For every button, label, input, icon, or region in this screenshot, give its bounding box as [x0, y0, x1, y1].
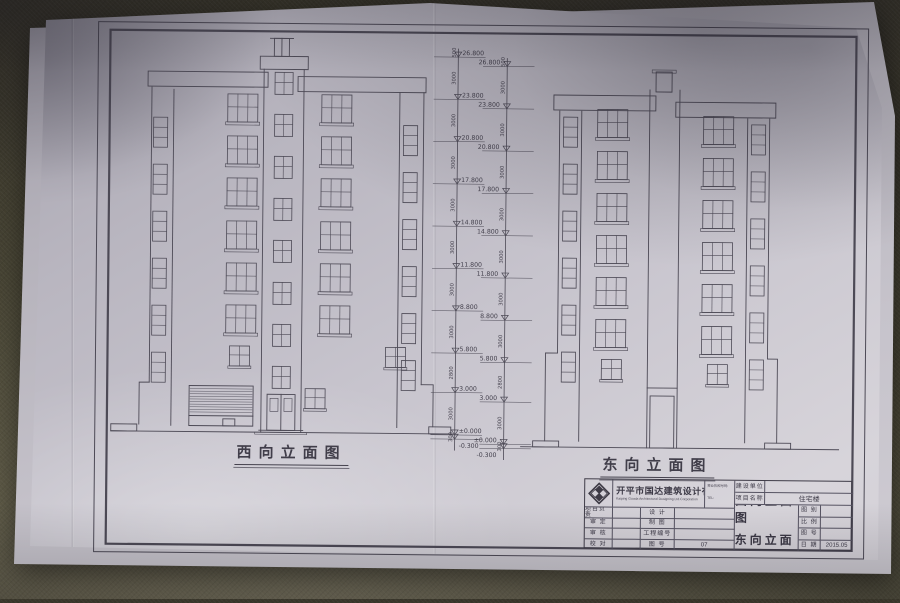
- elevation-value: 26.800: [462, 50, 484, 57]
- project-value: 住宅楼: [765, 493, 853, 506]
- sheet-title-cell: 西向立面图 东向立面图: [735, 505, 799, 552]
- design-label-1: 设 计: [641, 508, 675, 519]
- photo-of-architectural-drawing: { "drawing": { "caption_west": "西向立面图", …: [0, 0, 900, 599]
- design-value-3: [675, 529, 735, 540]
- company-name-cn: 开平市国达建筑设计有限公司: [616, 484, 704, 498]
- interval-dimension: 3000: [500, 166, 506, 179]
- elevation-value: 23.800: [478, 102, 500, 109]
- project-label: 项目名称: [735, 493, 765, 505]
- interval-dimension: 500: [501, 57, 507, 67]
- design-label-4: 图 号: [641, 539, 675, 550]
- interval-dimension: 3000: [499, 250, 505, 263]
- shaft-door-recess: [650, 396, 674, 448]
- elevation-value: 26.800: [479, 59, 501, 66]
- interval-dimension: 500: [452, 48, 458, 58]
- design-value-2: [675, 519, 735, 530]
- role-label-1: 项目负责: [585, 507, 613, 518]
- elevation-value: 8.800: [460, 304, 478, 311]
- role-value-2: [613, 518, 641, 529]
- interval-dimension: 2800: [498, 376, 504, 389]
- elevation-value: ±0.000: [474, 437, 497, 444]
- interval-dimension: 3000: [498, 293, 504, 306]
- license-label: 营业执照号码:: [707, 483, 718, 488]
- design-value-1: [675, 508, 735, 519]
- roller-door-hatch: [190, 389, 252, 413]
- interval-dimension: 300: [497, 442, 503, 452]
- company-name-en: Kaiping Guoda Architectural Designing Lt…: [616, 497, 653, 501]
- elevation-value: 8.800: [480, 313, 498, 320]
- drawing-number-value: 07: [675, 540, 735, 551]
- elevation-value: -0.300: [477, 452, 497, 459]
- interval-dimension: 3000: [497, 417, 503, 430]
- role-label-2: 审 定: [585, 518, 613, 529]
- tel-label: TEL:: [707, 495, 718, 500]
- meta-value-3: [821, 529, 853, 541]
- design-label-3: 工程编号: [641, 529, 675, 540]
- drawing-content: 26.80023.80020.80017.80014.80011.8008.80…: [0, 0, 900, 603]
- meta-label-3: 图 号: [799, 528, 821, 540]
- interval-dimension: 3000: [450, 283, 456, 296]
- elevation-value: ±0.000: [459, 428, 482, 435]
- meta-label-2: 比 例: [799, 517, 821, 529]
- elevation-value: 5.800: [459, 346, 477, 353]
- elevation-value: 14.800: [477, 228, 499, 235]
- meta-label-4: 日 期: [799, 540, 821, 552]
- role-value-3: [613, 529, 641, 540]
- title-block: 开平市国达建筑设计有限公司 Kaiping Guoda Architectura…: [584, 478, 853, 551]
- elevation-value: 20.800: [462, 135, 484, 142]
- interval-dimension: 3000: [499, 208, 505, 221]
- role-label-4: 校 对: [585, 539, 613, 550]
- interval-dimension: 3000: [448, 407, 454, 420]
- elevation-value: 11.800: [477, 271, 499, 278]
- interval-dimension: 3000: [449, 325, 455, 338]
- interval-dimension: 3000: [452, 72, 458, 85]
- interval-dimension: 3000: [498, 335, 504, 348]
- meta-value-1: [821, 506, 853, 518]
- design-label-2: 制 图: [641, 518, 675, 529]
- interval-dimension: 3000: [500, 81, 506, 94]
- license-cell: 营业执照号码: TEL:: [705, 480, 735, 508]
- company-logo-cell: [585, 479, 613, 507]
- sheet-title-line2: 东向立面图: [735, 530, 798, 551]
- elevation-value: 11.800: [460, 262, 482, 269]
- caption-west-elevation: 西向立面图: [234, 445, 348, 466]
- interval-dimension: 3000: [450, 241, 456, 254]
- east-elevation-windows: [561, 109, 766, 390]
- interval-dimension: 2800: [449, 366, 455, 379]
- elevation-value: 3.000: [479, 395, 497, 402]
- meta-value-2: [821, 517, 853, 529]
- company-name-cell: 开平市国达建筑设计有限公司 Kaiping Guoda Architectura…: [613, 480, 705, 509]
- interval-dimension: 3000: [451, 114, 457, 127]
- interval-dimension: 3000: [450, 198, 456, 211]
- elevation-value: 17.800: [461, 177, 483, 184]
- east-elevation-outline: [521, 69, 843, 450]
- elevation-value: 14.800: [461, 219, 483, 226]
- interval-dimension: 3000: [500, 123, 506, 136]
- role-value-1: [613, 508, 641, 519]
- elevation-value: 17.800: [477, 186, 499, 193]
- caption-east-elevation: 东向立面图: [600, 457, 714, 478]
- elevation-value: 3.000: [459, 386, 477, 393]
- interval-dimension: 300: [448, 432, 454, 442]
- diamond-logo-icon: [588, 482, 610, 504]
- elevation-value: 20.800: [478, 144, 500, 151]
- role-value-4: [613, 539, 641, 550]
- role-label-3: 审 核: [585, 528, 613, 539]
- meta-label-1: 图 别: [799, 505, 821, 517]
- elevation-value: 5.800: [480, 355, 498, 362]
- dimension-chains: 26.80023.80020.80017.80014.80011.8008.80…: [430, 47, 534, 460]
- date-value: 2015.05: [821, 540, 853, 552]
- client-label: 建设单位: [735, 481, 765, 493]
- elevation-value: 23.800: [462, 92, 484, 99]
- interval-dimension: 3000: [451, 156, 457, 169]
- west-elevation-windows: [151, 71, 418, 412]
- sheet-title-line1: 西向立面图: [735, 505, 798, 526]
- client-value: [765, 481, 853, 494]
